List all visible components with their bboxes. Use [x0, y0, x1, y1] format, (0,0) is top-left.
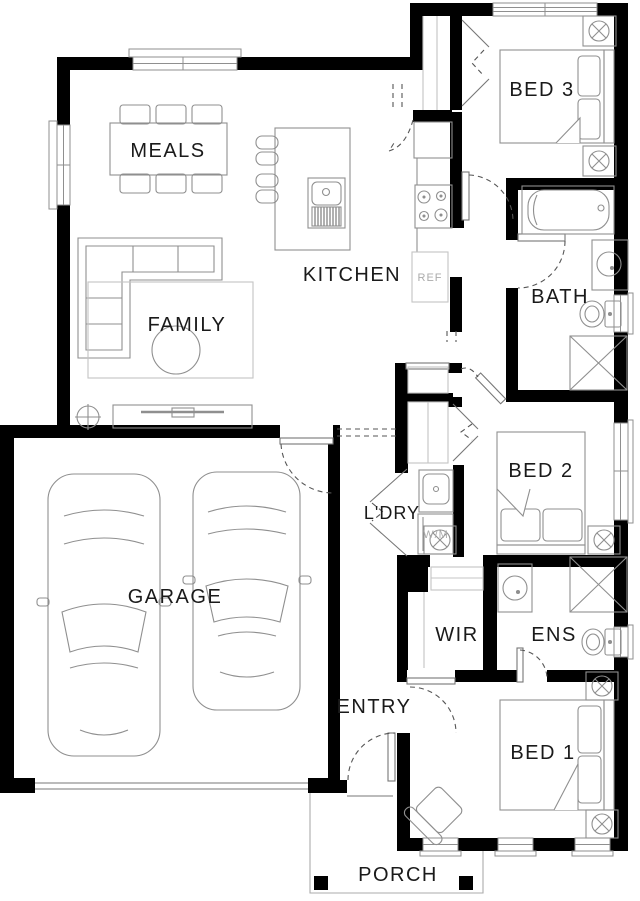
island-sink — [308, 178, 345, 228]
wall — [450, 277, 462, 332]
window-meals-frame — [129, 49, 241, 57]
room-label-porch: PORCH — [358, 864, 438, 886]
bedside-table — [583, 146, 616, 176]
window-bed1-frame — [420, 851, 461, 856]
wall — [397, 670, 407, 682]
wall — [57, 205, 70, 430]
floor-plan: MEALS KITCHEN FAMILY GARAGE ENTRY PORCH … — [0, 0, 640, 901]
garage-internal-door — [280, 438, 333, 444]
laundry-tub — [419, 470, 453, 512]
room-label-garage: GARAGE — [128, 586, 223, 608]
room-label-ens: ENS — [531, 624, 577, 646]
door-swing-arc — [520, 650, 547, 680]
wall — [397, 733, 410, 851]
wall — [533, 838, 575, 851]
kitchen-island — [256, 128, 350, 250]
wall — [455, 670, 483, 682]
opening-dash — [447, 331, 456, 342]
wall — [450, 16, 462, 110]
wall — [506, 288, 518, 402]
armchair — [402, 781, 468, 847]
bed2-bed — [497, 432, 585, 554]
fridge-label: REF — [418, 272, 443, 284]
bath-door — [518, 234, 565, 241]
wir-door — [407, 678, 455, 684]
room-label-bed1: BED 1 — [510, 742, 575, 764]
hall-door — [462, 172, 469, 220]
wall — [506, 390, 628, 402]
wall — [0, 425, 280, 438]
wall — [458, 838, 498, 851]
window-bed2-frame — [628, 420, 633, 523]
room-label-bed2: BED 2 — [508, 460, 573, 482]
kitchen-bench — [414, 122, 452, 252]
door-swing-arc — [410, 687, 456, 733]
door-swing-arc — [518, 241, 565, 288]
room-label-entry: ENTRY — [337, 696, 412, 718]
room-label-bath: BATH — [531, 286, 589, 308]
window-bed1-frame — [495, 851, 536, 856]
window-ens-frame — [628, 625, 633, 659]
wall — [57, 57, 70, 125]
wall — [448, 363, 462, 373]
wall — [506, 178, 628, 190]
porch-post — [314, 876, 328, 890]
car — [37, 474, 171, 756]
wall — [610, 838, 628, 851]
wall — [506, 178, 518, 240]
front-door — [388, 733, 395, 781]
walls — [0, 3, 628, 851]
bed3-robe-doors — [462, 20, 489, 106]
wall — [614, 657, 628, 851]
linen-door — [406, 363, 449, 369]
wall — [397, 393, 453, 402]
appliance-labels: REF W/M — [418, 272, 449, 541]
bed2-door — [476, 373, 506, 404]
window-family-frame — [49, 121, 57, 209]
wall — [237, 57, 423, 70]
bed2-robe-doors — [453, 404, 478, 461]
doors — [280, 20, 565, 796]
wall — [413, 110, 452, 122]
bathtub — [522, 186, 614, 234]
room-label-kitchen: KITCHEN — [303, 264, 401, 286]
wall — [0, 778, 35, 793]
bedside-table — [583, 16, 616, 46]
room-label-family: FAMILY — [148, 314, 227, 336]
porch-post — [459, 876, 473, 890]
cooktop — [415, 185, 452, 228]
window-bath-frame — [628, 293, 633, 334]
room-label-laundry: L'DRY — [364, 503, 420, 523]
robe-chevron — [472, 50, 484, 76]
sofa — [78, 238, 222, 358]
ens-door — [517, 648, 523, 682]
opening-dash — [337, 429, 397, 436]
room-label-meals: MEALS — [130, 140, 205, 162]
wall — [453, 465, 464, 557]
room-label-wir: WIR — [435, 624, 478, 646]
wall — [483, 555, 497, 682]
window-bed1-frame — [572, 851, 613, 856]
garage-door — [35, 783, 308, 789]
room-label-bed3: BED 3 — [509, 79, 574, 101]
bed3-robe-shelf — [423, 16, 437, 110]
wall — [328, 438, 340, 780]
linen-cupboard — [408, 367, 448, 393]
bedside-table — [586, 810, 618, 838]
door-swing-arc — [461, 368, 478, 377]
tv-unit — [113, 405, 252, 428]
ens-basin — [498, 564, 532, 612]
wall — [410, 3, 493, 16]
robe-chevron — [461, 424, 472, 440]
wall — [395, 363, 408, 473]
wall — [0, 425, 14, 793]
door-swing-arc — [281, 444, 333, 493]
opening-dash — [393, 84, 402, 110]
wall — [308, 780, 347, 793]
washer-label: W/M — [423, 529, 449, 541]
door-swing-arc — [389, 120, 413, 151]
wardrobe-shelf — [424, 567, 483, 668]
wall — [397, 555, 430, 567]
